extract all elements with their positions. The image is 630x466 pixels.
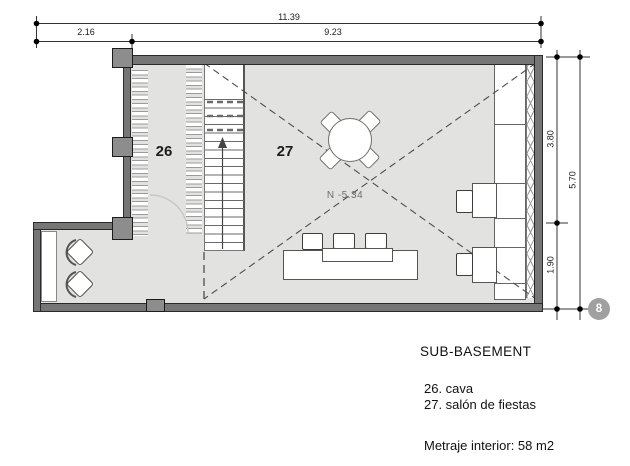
desk-chair bbox=[456, 190, 473, 213]
wall-lining-hatch bbox=[526, 64, 534, 298]
door-jamb-block bbox=[146, 299, 165, 312]
round-table bbox=[328, 118, 372, 162]
wall-bottom bbox=[33, 303, 543, 312]
shelf-divider bbox=[495, 247, 525, 248]
bar-stool bbox=[333, 233, 355, 249]
shelf-divider bbox=[495, 183, 525, 184]
floor-plan-sheet: 11.39 2.16 9.23 3.80 1.90 5.70 26 27 N -… bbox=[0, 0, 630, 466]
room-label-salon: 27 bbox=[265, 143, 305, 160]
wall-annex-top bbox=[33, 222, 115, 230]
shelf-unit-band bbox=[494, 64, 526, 300]
bar-stool bbox=[365, 233, 387, 249]
pilaster-annex bbox=[112, 217, 133, 240]
shelf-divider bbox=[495, 124, 525, 125]
dim-right-width: 9.23 bbox=[308, 27, 358, 38]
pilaster-top bbox=[112, 48, 133, 68]
desk-unit bbox=[472, 183, 497, 218]
pilaster-middle bbox=[112, 137, 133, 157]
desk-unit bbox=[472, 247, 497, 283]
shelf-divider bbox=[495, 218, 525, 219]
grid-marker-bubble: 8 bbox=[588, 298, 610, 320]
dim-upper-height: 3.80 bbox=[546, 130, 557, 148]
dim-lower-height: 1.90 bbox=[546, 256, 557, 274]
annex-closet-band bbox=[41, 231, 57, 302]
wall-right bbox=[534, 55, 543, 312]
bar-counter-top bbox=[322, 248, 393, 262]
legend-item-cava: 26. cava bbox=[424, 381, 473, 396]
room-label-cava: 26 bbox=[144, 143, 184, 160]
sheet-title: SUB-BASEMENT bbox=[420, 344, 531, 359]
dim-total-height: 5.70 bbox=[568, 171, 579, 189]
wall-annex-left bbox=[33, 222, 41, 312]
stair-treads bbox=[205, 99, 244, 250]
area-note: Metraje interior: 58 m2 bbox=[424, 438, 554, 453]
bar-stool bbox=[302, 233, 323, 250]
desk-chair bbox=[456, 253, 473, 276]
wall-top bbox=[131, 55, 543, 65]
dim-total-width: 11.39 bbox=[264, 12, 314, 23]
shelf-divider bbox=[495, 283, 525, 284]
dim-left-width: 2.16 bbox=[61, 27, 111, 38]
level-label: N -5.34 bbox=[315, 190, 375, 201]
legend-item-salon: 27. salón de fiestas bbox=[424, 397, 536, 412]
wine-rack-right bbox=[186, 64, 202, 236]
